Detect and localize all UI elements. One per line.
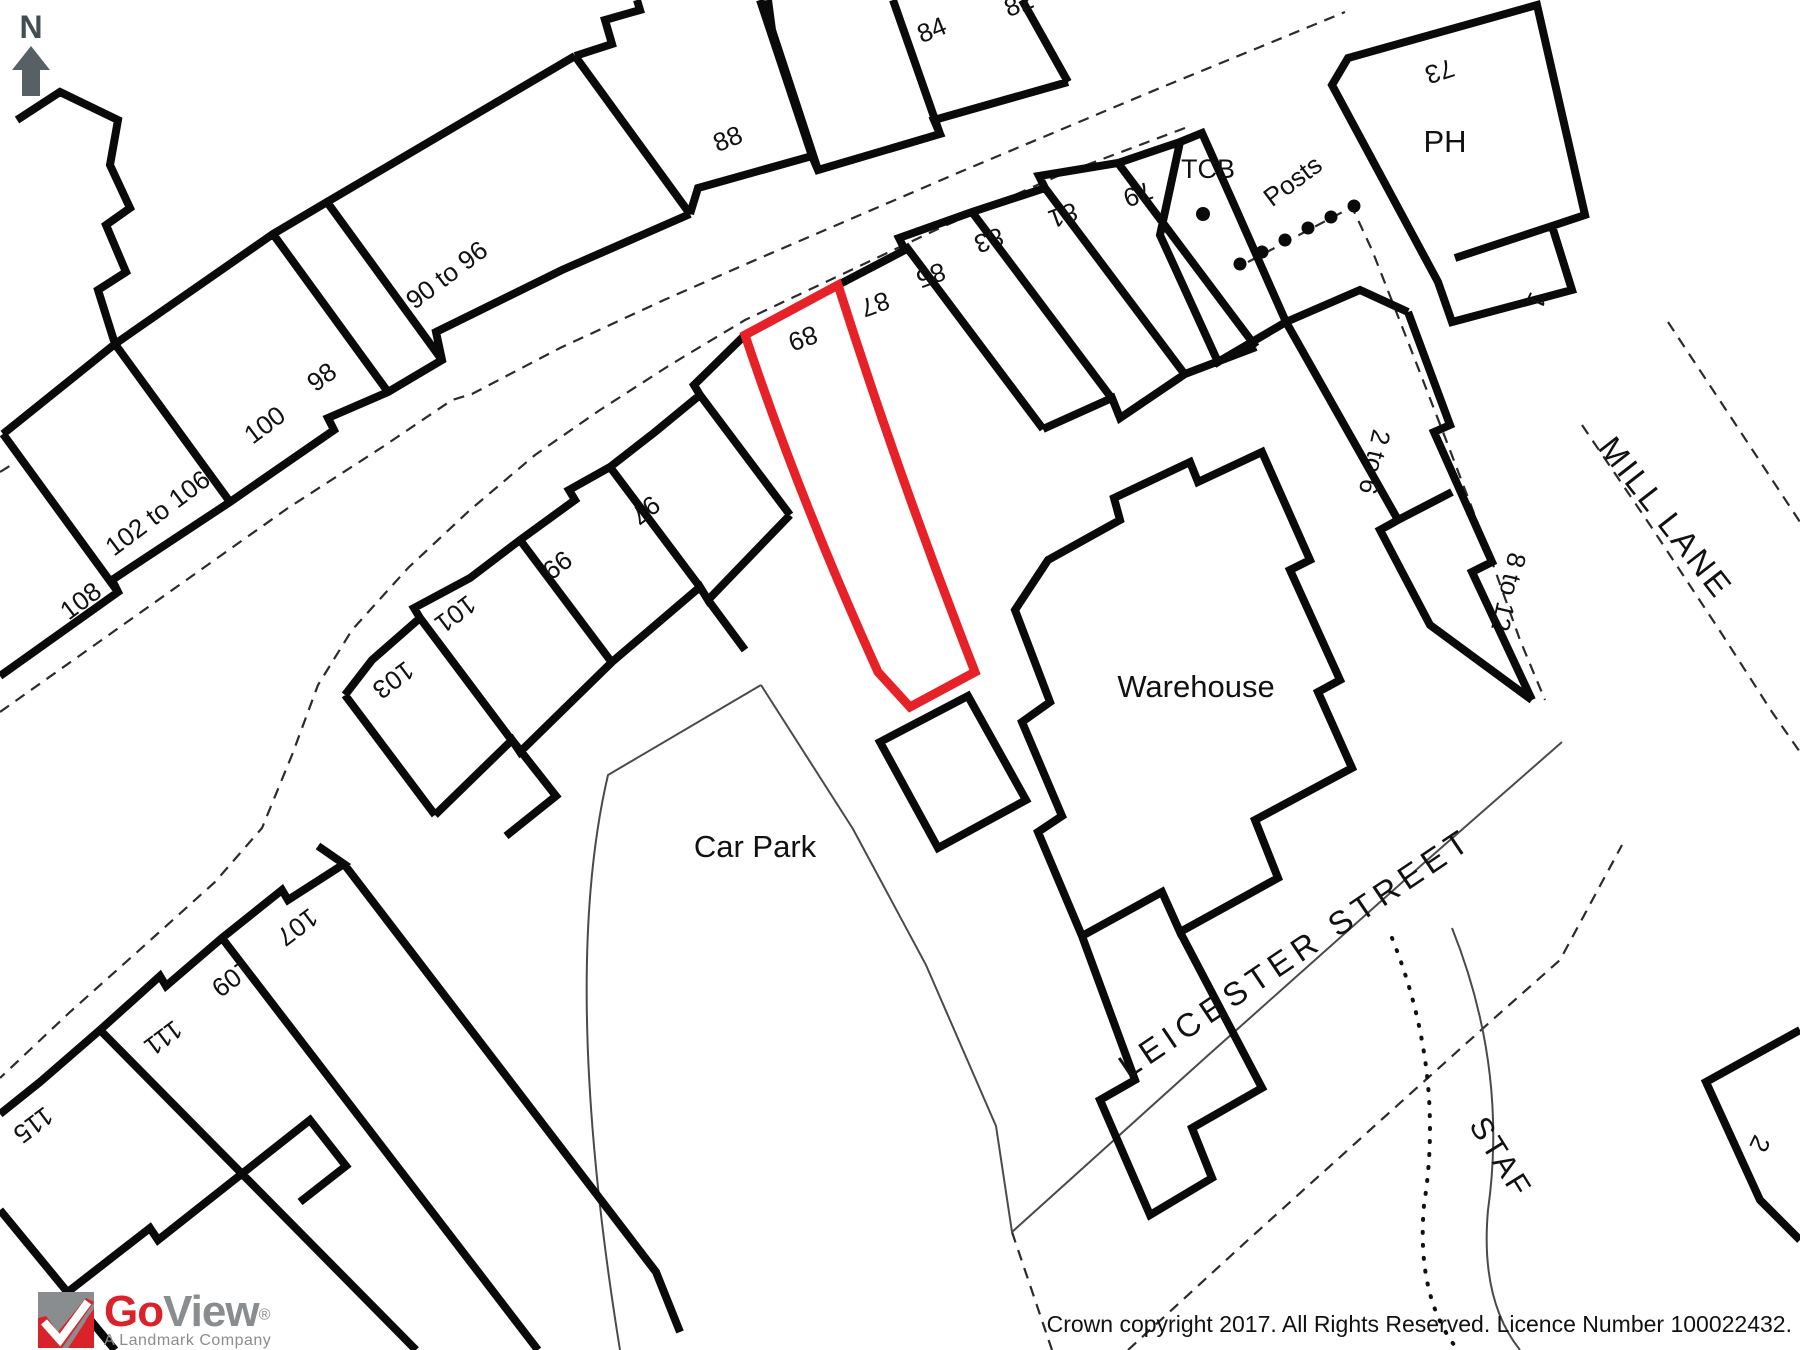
parcel-boundary-lines: [587, 685, 1562, 1350]
map-label-house-1: 1: [1520, 288, 1553, 314]
map-label-posts: Posts: [1258, 149, 1328, 212]
map-label-house-84: 84: [913, 10, 951, 49]
map-label-house-115: 115: [8, 1101, 59, 1150]
map-label-house-89: 89: [784, 319, 821, 357]
logo-word-go: Go: [104, 1287, 163, 1336]
map-label-warehouse: Warehouse: [1117, 669, 1274, 704]
map-label-house-88: 88: [709, 119, 747, 158]
map-label-house-111: 111: [139, 1014, 189, 1062]
map-label-house-107: 107: [271, 902, 324, 952]
building-outlines: [0, 0, 1800, 1350]
site-plan-page: N 84828890 to 9698100102 to 106108979910…: [0, 0, 1800, 1350]
road-edge-dotted-curve: [1392, 938, 1458, 1350]
map-label-house-98: 98: [301, 356, 342, 397]
copyright-text: Crown copyright 2017. All Rights Reserve…: [1047, 1311, 1792, 1338]
map-label-house-2-6: 2 to 6: [1353, 427, 1397, 497]
map-label-ph: PH: [1423, 124, 1466, 159]
map-canvas: N 84828890 to 9698100102 to 106108979910…: [0, 0, 1800, 1350]
map-label-house-87: 87: [856, 285, 893, 323]
map-label-house-90-96: 90 to 96: [400, 235, 493, 316]
map-label-street-leicester: LEICESTER STREET: [1112, 820, 1480, 1085]
map-label-house-109: 109: [206, 953, 259, 1003]
map-label-house-73: 73: [1421, 53, 1458, 90]
logo-tagline: A Landmark Company: [104, 1334, 271, 1348]
map-label-street-staf: STAF: [1462, 1110, 1539, 1204]
map-label-house-100: 100: [238, 400, 291, 450]
map-label-tcb: TCB: [1181, 154, 1235, 184]
map-labels: 84828890 to 9698100102 to 10610897991011…: [8, 0, 1777, 1204]
map-label-street-mill-lane: MILL LANE: [1591, 430, 1740, 606]
north-arrow-letter: N: [19, 9, 42, 45]
north-arrow: N: [12, 9, 50, 96]
goview-logo: GoView® A Landmark Company: [38, 1292, 271, 1348]
logo-word-view: View: [163, 1287, 258, 1336]
north-arrow-icon: [12, 46, 50, 96]
map-label-house-99: 99: [537, 545, 578, 586]
logo-registered-mark: ®: [259, 1307, 271, 1324]
tcb-dot: [1196, 207, 1210, 221]
map-label-car-park: Car Park: [694, 829, 817, 864]
map-label-house-108: 108: [54, 576, 107, 626]
map-label-house-2: 2: [1744, 1131, 1777, 1157]
goview-logo-icon: [38, 1292, 94, 1348]
